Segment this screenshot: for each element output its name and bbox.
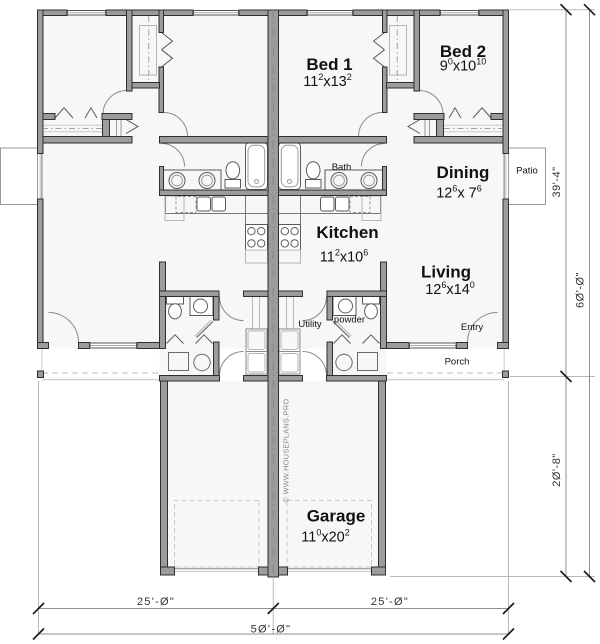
svg-text:powder: powder (334, 315, 365, 326)
svg-text:112x106: 112x106 (320, 247, 368, 265)
svg-text:Living: Living (421, 263, 471, 282)
svg-text:Utility: Utility (298, 319, 321, 330)
svg-text:Porch: Porch (445, 357, 470, 368)
svg-text:25'-Ø": 25'-Ø" (371, 596, 409, 608)
svg-text:126x 76: 126x 76 (436, 183, 482, 201)
svg-text:Kitchen: Kitchen (316, 223, 378, 242)
svg-text:Dining: Dining (437, 163, 490, 182)
svg-text:Entry: Entry (461, 322, 483, 333)
svg-text:39'-4": 39'-4" (551, 166, 563, 197)
svg-text:© WWW.HOUSEPLANS.PRO: © WWW.HOUSEPLANS.PRO (282, 399, 291, 503)
svg-text:126x140: 126x140 (425, 280, 475, 298)
svg-text:110x202: 110x202 (301, 527, 349, 545)
svg-text:Patio: Patio (516, 166, 538, 177)
svg-text:5Ø'-Ø": 5Ø'-Ø" (251, 624, 292, 636)
svg-text:25'-Ø": 25'-Ø" (137, 596, 175, 608)
svg-text:6Ø'-Ø": 6Ø'-Ø" (575, 272, 587, 308)
svg-text:Bed 1: Bed 1 (306, 55, 352, 74)
svg-text:Bath: Bath (332, 162, 352, 173)
svg-text:112x132: 112x132 (303, 72, 351, 90)
svg-text:Garage: Garage (307, 507, 366, 526)
svg-text:2Ø'-8": 2Ø'-8" (551, 453, 563, 486)
